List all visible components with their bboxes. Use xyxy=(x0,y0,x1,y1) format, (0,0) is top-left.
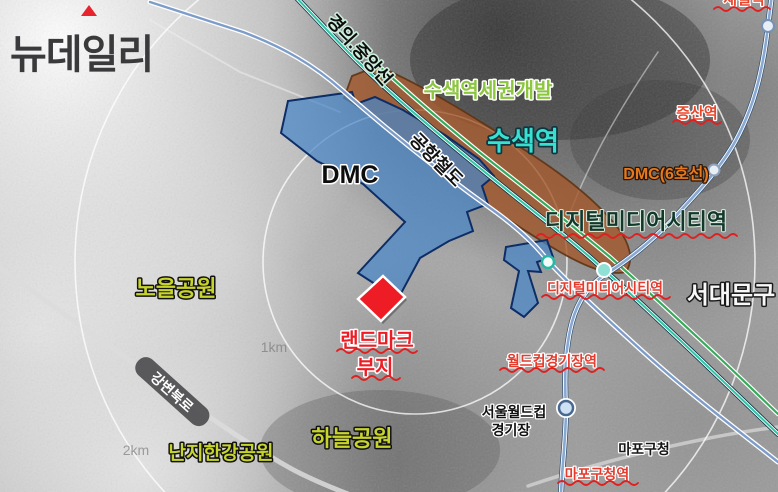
haneul-park-label: 하늘공원 xyxy=(312,426,393,451)
worldcup-stadium-station-label: 월드컵경기장역 xyxy=(507,353,597,369)
worldcup-station-marker xyxy=(559,401,573,415)
dmc-line6-label: DMC(6호선) xyxy=(623,165,708,183)
dmc-station-marker xyxy=(597,263,611,277)
radius-label-1km: 1km xyxy=(261,339,287,355)
susaek-redevelopment-label: 수색역세권개발 xyxy=(424,79,553,102)
dmc-line6-station-marker xyxy=(709,165,720,176)
seoul-worldcup-stadium-label-line2: 경기장 xyxy=(492,422,531,438)
jeungsan-station-label: 증산역 xyxy=(676,105,717,122)
dmc-area-label: DMC xyxy=(322,161,379,189)
susaek-station-label: 수색역 xyxy=(487,126,559,156)
news-logo-text: 뉴데일리 xyxy=(10,33,153,77)
news-map-image: 강변북로 경의.중앙선 공항철도 수색역세권개발 수색역 증산역 새절역 DMC… xyxy=(0,0,778,492)
nanji-hangang-park-label: 난지한강공원 xyxy=(169,442,274,464)
saejeol-station-label: 새절역 xyxy=(723,0,764,8)
saejeol-station-marker xyxy=(762,20,774,32)
landmark-site-label-line1: 랜드마크 xyxy=(340,329,414,352)
digital-media-city-station-sublabel: 디지털미디어시티역 xyxy=(547,280,663,296)
digital-media-city-station-label: 디지털미디어시티역 xyxy=(545,209,727,234)
seoul-worldcup-stadium-label-line1: 서울월드컵 xyxy=(482,404,546,420)
noeul-park-label: 노을공원 xyxy=(136,276,217,301)
rail-station-marker xyxy=(542,256,554,268)
radius-label-2km: 2km xyxy=(123,442,149,458)
mapo-gu-office-label: 마포구청 xyxy=(618,441,670,457)
seodaemun-gu-label: 서대문구 xyxy=(687,282,775,309)
mapo-gu-office-station-label: 마포구청역 xyxy=(565,466,629,482)
satellite-map: 강변북로 경의.중앙선 공항철도 수색역세권개발 수색역 증산역 새절역 DMC… xyxy=(0,0,778,492)
